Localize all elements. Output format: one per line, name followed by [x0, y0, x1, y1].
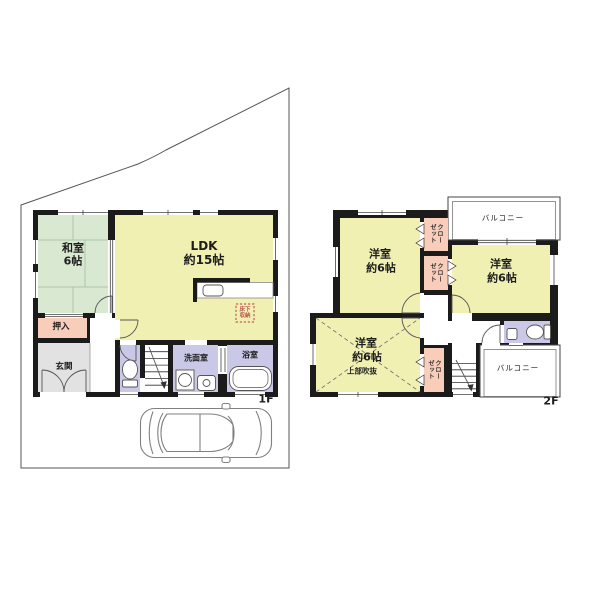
hall-2f-b	[448, 321, 500, 343]
room3-label: 洋室	[355, 338, 377, 351]
balcony-south-label: バルコニー	[497, 365, 539, 374]
ldk-size-label: 約15帖	[184, 254, 225, 268]
hallway-1f	[90, 318, 115, 392]
ldk-room	[115, 215, 273, 340]
closet1-label: クローゼット	[429, 224, 443, 244]
closet2-label: クローゼット	[429, 263, 443, 283]
senmen-label: 洗面室	[184, 353, 208, 362]
fukinuke-label: 上部吹抜	[347, 368, 377, 377]
washitsu-size-label: 6帖	[64, 256, 83, 269]
washitsu-label: 和室	[62, 243, 84, 256]
bathtub-icon	[230, 367, 272, 391]
room2-label: 洋室	[490, 259, 512, 272]
floorplan-drawing	[0, 0, 600, 600]
floor1-label: 1F	[258, 394, 273, 407]
ldk-label: LDK	[191, 240, 218, 254]
sink-icon-1f	[198, 376, 216, 391]
room1-size-label: 約6帖	[366, 263, 396, 276]
oshiire-label: 押入	[52, 323, 69, 333]
toilet-icon-1f	[123, 360, 138, 387]
closet3-label: クローゼット	[427, 360, 441, 380]
floor2-label: 2F	[543, 396, 558, 409]
room1-label: 洋室	[369, 249, 391, 262]
room2-size-label: 約6帖	[487, 273, 517, 286]
balcony-north-label: バルコニー	[482, 215, 524, 224]
genkan-label: 玄関	[55, 363, 72, 373]
floor-storage-line2: 収納	[239, 313, 250, 319]
floorplan-image: 和室 6帖 LDK 約15帖 押入 玄関 洗面室 浴室 床下 収納 1F 洋室 …	[0, 0, 600, 600]
washing-machine-icon	[176, 370, 194, 390]
bath-label: 浴室	[242, 350, 258, 359]
room3-size-label: 約6帖	[352, 352, 382, 365]
car-illustration	[141, 404, 272, 463]
floor-storage-label: 床下 収納	[239, 307, 250, 319]
hall-2f-a	[424, 295, 448, 345]
